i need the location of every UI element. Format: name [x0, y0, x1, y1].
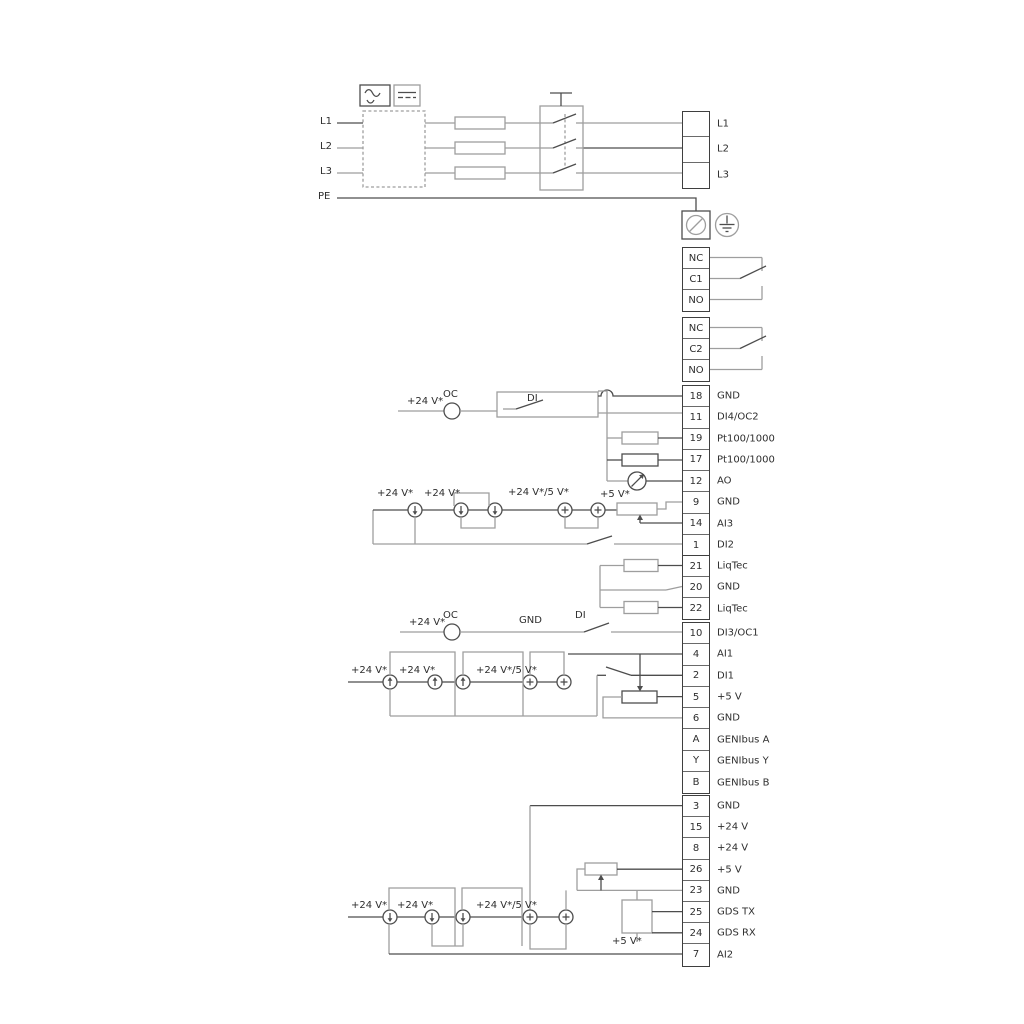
oc-label: OC: [443, 390, 458, 400]
fuse-icon: [455, 142, 505, 154]
supply-label: +24 V*/5 V*: [476, 901, 537, 911]
terminal-number: A: [683, 729, 709, 749]
terminal-block-relay-1: NCC1NO: [682, 247, 710, 312]
gds-sensor-box: [622, 890, 682, 942]
pt100-resistor-icon: [607, 454, 682, 466]
power-section: [337, 85, 739, 239]
terminal-number: 17: [683, 450, 709, 470]
terminal-label: AI2: [717, 949, 733, 960]
terminal-label: DI3/OC1: [717, 628, 759, 639]
terminal-cell: 15+24 V: [683, 817, 709, 838]
current-source-icon: [454, 503, 468, 517]
terminal-number: NC: [683, 248, 709, 268]
terminal-number: [683, 163, 709, 188]
input-label-l3: L3: [320, 167, 332, 177]
terminal-label: GDS TX: [717, 907, 755, 918]
terminal-cell: 12AO: [683, 471, 709, 492]
terminal-number: NC: [683, 318, 709, 338]
terminal-cell: 24GDS RX: [683, 923, 709, 944]
fuse-icon: [455, 117, 505, 129]
terminal-cell: NC: [683, 248, 709, 269]
terminal-cell: 6GND: [683, 708, 709, 729]
voltage-source-icon: [523, 910, 537, 924]
power-wires: [337, 123, 696, 211]
terminal-block-io-top: 18GND11DI4/OC219Pt100/100017Pt100/100012…: [682, 385, 710, 557]
terminal-number: 12: [683, 471, 709, 491]
terminal-label: LiqTec: [717, 561, 748, 572]
terminal-label: +5 V: [717, 692, 742, 703]
current-source-icon: [383, 675, 397, 689]
ai1-di1-circuit: [348, 652, 682, 718]
terminal-label: L1: [717, 119, 729, 130]
terminal-label: DI2: [717, 540, 734, 551]
terminal-number: 7: [683, 944, 709, 965]
terminal-cell: 5+5 V: [683, 687, 709, 708]
ac-symbol-icon: [360, 85, 390, 106]
terminal-label: AO: [717, 476, 732, 487]
di-switch-box: [497, 392, 598, 417]
current-source-icon: [428, 675, 442, 689]
supply-label: +24 V*: [351, 666, 387, 676]
terminal-cell: 2DI1: [683, 666, 709, 687]
terminal-number: 8: [683, 838, 709, 858]
terminal-cell: L3: [683, 163, 709, 188]
terminal-cell: NO: [683, 360, 709, 381]
supply-label: +5 V*: [612, 937, 642, 947]
terminal-cell: 21LiqTec: [683, 556, 709, 577]
ai2-gds-circuit: [348, 806, 682, 954]
converter-box: [363, 111, 425, 187]
terminal-number: 20: [683, 577, 709, 597]
terminal-number: NO: [683, 290, 709, 311]
terminal-number: 26: [683, 860, 709, 880]
oc-label: OC: [443, 611, 458, 621]
terminal-cell: 17Pt100/1000: [683, 450, 709, 471]
open-collector-icon: [444, 624, 460, 640]
terminal-number: 22: [683, 598, 709, 619]
terminal-label: AI1: [717, 649, 733, 660]
terminal-cell: 22LiqTec: [683, 598, 709, 619]
terminal-cell: 18GND: [683, 386, 709, 407]
terminal-cell: 25GDS TX: [683, 902, 709, 923]
terminal-number: 9: [683, 492, 709, 512]
terminal-number: 10: [683, 623, 709, 643]
supply-label: +5 V*: [600, 490, 630, 500]
terminal-label: L3: [717, 170, 729, 181]
dc-symbol-icon: [394, 85, 420, 106]
terminal-label: DI1: [717, 670, 734, 681]
terminal-number: 24: [683, 923, 709, 943]
analog-output-meter-icon: [607, 472, 682, 490]
terminal-block-relay-2: NCC2NO: [682, 317, 710, 382]
terminal-number: 21: [683, 556, 709, 576]
earth-terminal-icon: [682, 211, 710, 239]
pt100-resistor-icon: [607, 432, 682, 444]
terminal-label: GND: [717, 885, 740, 896]
terminal-cell: AGENIbus A: [683, 729, 709, 750]
voltage-source-icon: [558, 503, 572, 517]
di-label: DI: [527, 394, 538, 404]
wiring-lines: [0, 0, 1024, 1024]
supply-label: +24 V*: [424, 489, 460, 499]
terminal-cell: L1: [683, 112, 709, 137]
potentiometer-icon: [577, 863, 682, 890]
terminal-number: 23: [683, 881, 709, 901]
terminal-cell: BGENIbus B: [683, 772, 709, 793]
terminal-number: Y: [683, 751, 709, 771]
terminal-block-liqtec: 21LiqTec20GND22LiqTec: [682, 555, 710, 620]
potentiometer-icon: [603, 654, 682, 718]
terminal-number: B: [683, 772, 709, 793]
terminal-label: Pt100/1000: [717, 454, 775, 465]
terminal-number: 18: [683, 386, 709, 406]
input-label-l2: L2: [320, 142, 332, 152]
terminal-number: 19: [683, 429, 709, 449]
terminal-cell: NO: [683, 290, 709, 311]
current-source-icon: [488, 503, 502, 517]
supply-label: +24 V*: [399, 666, 435, 676]
terminal-cell: NC: [683, 318, 709, 339]
terminal-label: GND: [717, 582, 740, 593]
wiring-diagram-page: L1 L2 L3 PE +24 V* OC DI +24 V* +24 V* +…: [0, 0, 1024, 1024]
terminal-cell: 9GND: [683, 492, 709, 513]
terminal-label: +5 V: [717, 864, 742, 875]
open-collector-icon: [444, 403, 460, 419]
terminal-number: [683, 112, 709, 136]
terminal-cell: 8+24 V: [683, 838, 709, 859]
terminal-cell: 14AI3: [683, 514, 709, 535]
terminal-cell: 11DI4/OC2: [683, 407, 709, 428]
terminal-label: L2: [717, 144, 729, 155]
supply-label: +24 V*: [397, 901, 433, 911]
current-source-icon: [456, 910, 470, 924]
terminal-number: 15: [683, 817, 709, 837]
terminal-cell: 26+5 V: [683, 860, 709, 881]
terminal-number: 5: [683, 687, 709, 707]
terminal-number: NO: [683, 360, 709, 381]
terminal-cell: 10DI3/OC1: [683, 623, 709, 644]
terminal-cell: 4AI1: [683, 644, 709, 665]
voltage-source-icon: [559, 910, 573, 924]
terminal-number: 1: [683, 535, 709, 556]
main-switch: [540, 93, 583, 190]
terminal-number: 4: [683, 644, 709, 664]
terminal-cell: 19Pt100/1000: [683, 429, 709, 450]
terminal-label: GENIbus Y: [717, 755, 769, 766]
terminal-number: C1: [683, 269, 709, 289]
terminal-cell: 7AI2: [683, 944, 709, 965]
terminal-cell: C2: [683, 339, 709, 360]
terminal-label: GND: [717, 713, 740, 724]
terminal-label: +24 V: [717, 822, 748, 833]
potentiometer-icon: [617, 502, 682, 523]
terminal-cell: C1: [683, 269, 709, 290]
terminal-number: C2: [683, 339, 709, 359]
terminal-label: +24 V: [717, 843, 748, 854]
supply-label: +24 V*/5 V*: [476, 666, 537, 676]
input-label-l1: L1: [320, 117, 332, 127]
fuse-icon: [455, 167, 505, 179]
terminal-label: DI4/OC2: [717, 412, 759, 423]
relay2-contact: [710, 328, 766, 370]
terminal-number: 2: [683, 666, 709, 686]
terminal-cell: 1DI2: [683, 535, 709, 556]
terminal-number: 14: [683, 514, 709, 534]
terminal-label: GND: [717, 391, 740, 402]
terminal-label: GDS RX: [717, 928, 756, 939]
terminal-label: Pt100/1000: [717, 433, 775, 444]
di-label: DI: [575, 611, 586, 621]
terminal-block-power-output: L1L2L3: [682, 111, 710, 189]
terminal-cell: L2: [683, 137, 709, 162]
terminal-cell: 23GND: [683, 881, 709, 902]
terminal-label: GENIbus A: [717, 734, 769, 745]
gnd-label: GND: [519, 616, 542, 626]
terminal-label: GND: [717, 801, 740, 812]
ai3-di2-circuit: [373, 493, 682, 544]
terminal-label: AI3: [717, 518, 733, 529]
supply-label: +24 V*: [377, 489, 413, 499]
voltage-source-icon: [557, 675, 571, 689]
protective-earth-icon: [716, 214, 739, 237]
input-label-pe: PE: [318, 192, 330, 202]
voltage-source-icon: [591, 503, 605, 517]
terminal-number: 11: [683, 407, 709, 427]
voltage-source-icon: [523, 675, 537, 689]
terminal-label: GND: [717, 497, 740, 508]
terminal-cell: 3GND: [683, 796, 709, 817]
current-source-icon: [383, 910, 397, 924]
terminal-label: GENIbus B: [717, 777, 769, 788]
terminal-number: 6: [683, 708, 709, 728]
liqtec-circuit: [600, 560, 682, 614]
relay1-contact: [710, 258, 766, 300]
terminal-label: LiqTec: [717, 603, 748, 614]
supply-label: +24 V*: [351, 901, 387, 911]
liqtec-resistor-icon: [600, 560, 682, 572]
current-source-icon: [425, 910, 439, 924]
terminal-number: [683, 137, 709, 161]
terminal-cell: YGENIbus Y: [683, 751, 709, 772]
supply-label: +24 V*/5 V*: [508, 488, 569, 498]
terminal-block-io-mid: 10DI3/OC14AI12DI15+5 V6GNDAGENIbus AYGEN…: [682, 622, 710, 794]
terminal-block-io-bottom: 3GND15+24 V8+24 V26+5 V23GND25GDS TX24GD…: [682, 795, 710, 967]
terminal-cell: 20GND: [683, 577, 709, 598]
current-source-icon: [456, 675, 470, 689]
supply-label: +24 V*: [409, 618, 445, 628]
liqtec-resistor-icon: [600, 602, 682, 614]
terminal-number: 25: [683, 902, 709, 922]
terminal-number: 3: [683, 796, 709, 816]
current-source-icon: [408, 503, 422, 517]
supply-label: +24 V*: [407, 397, 443, 407]
